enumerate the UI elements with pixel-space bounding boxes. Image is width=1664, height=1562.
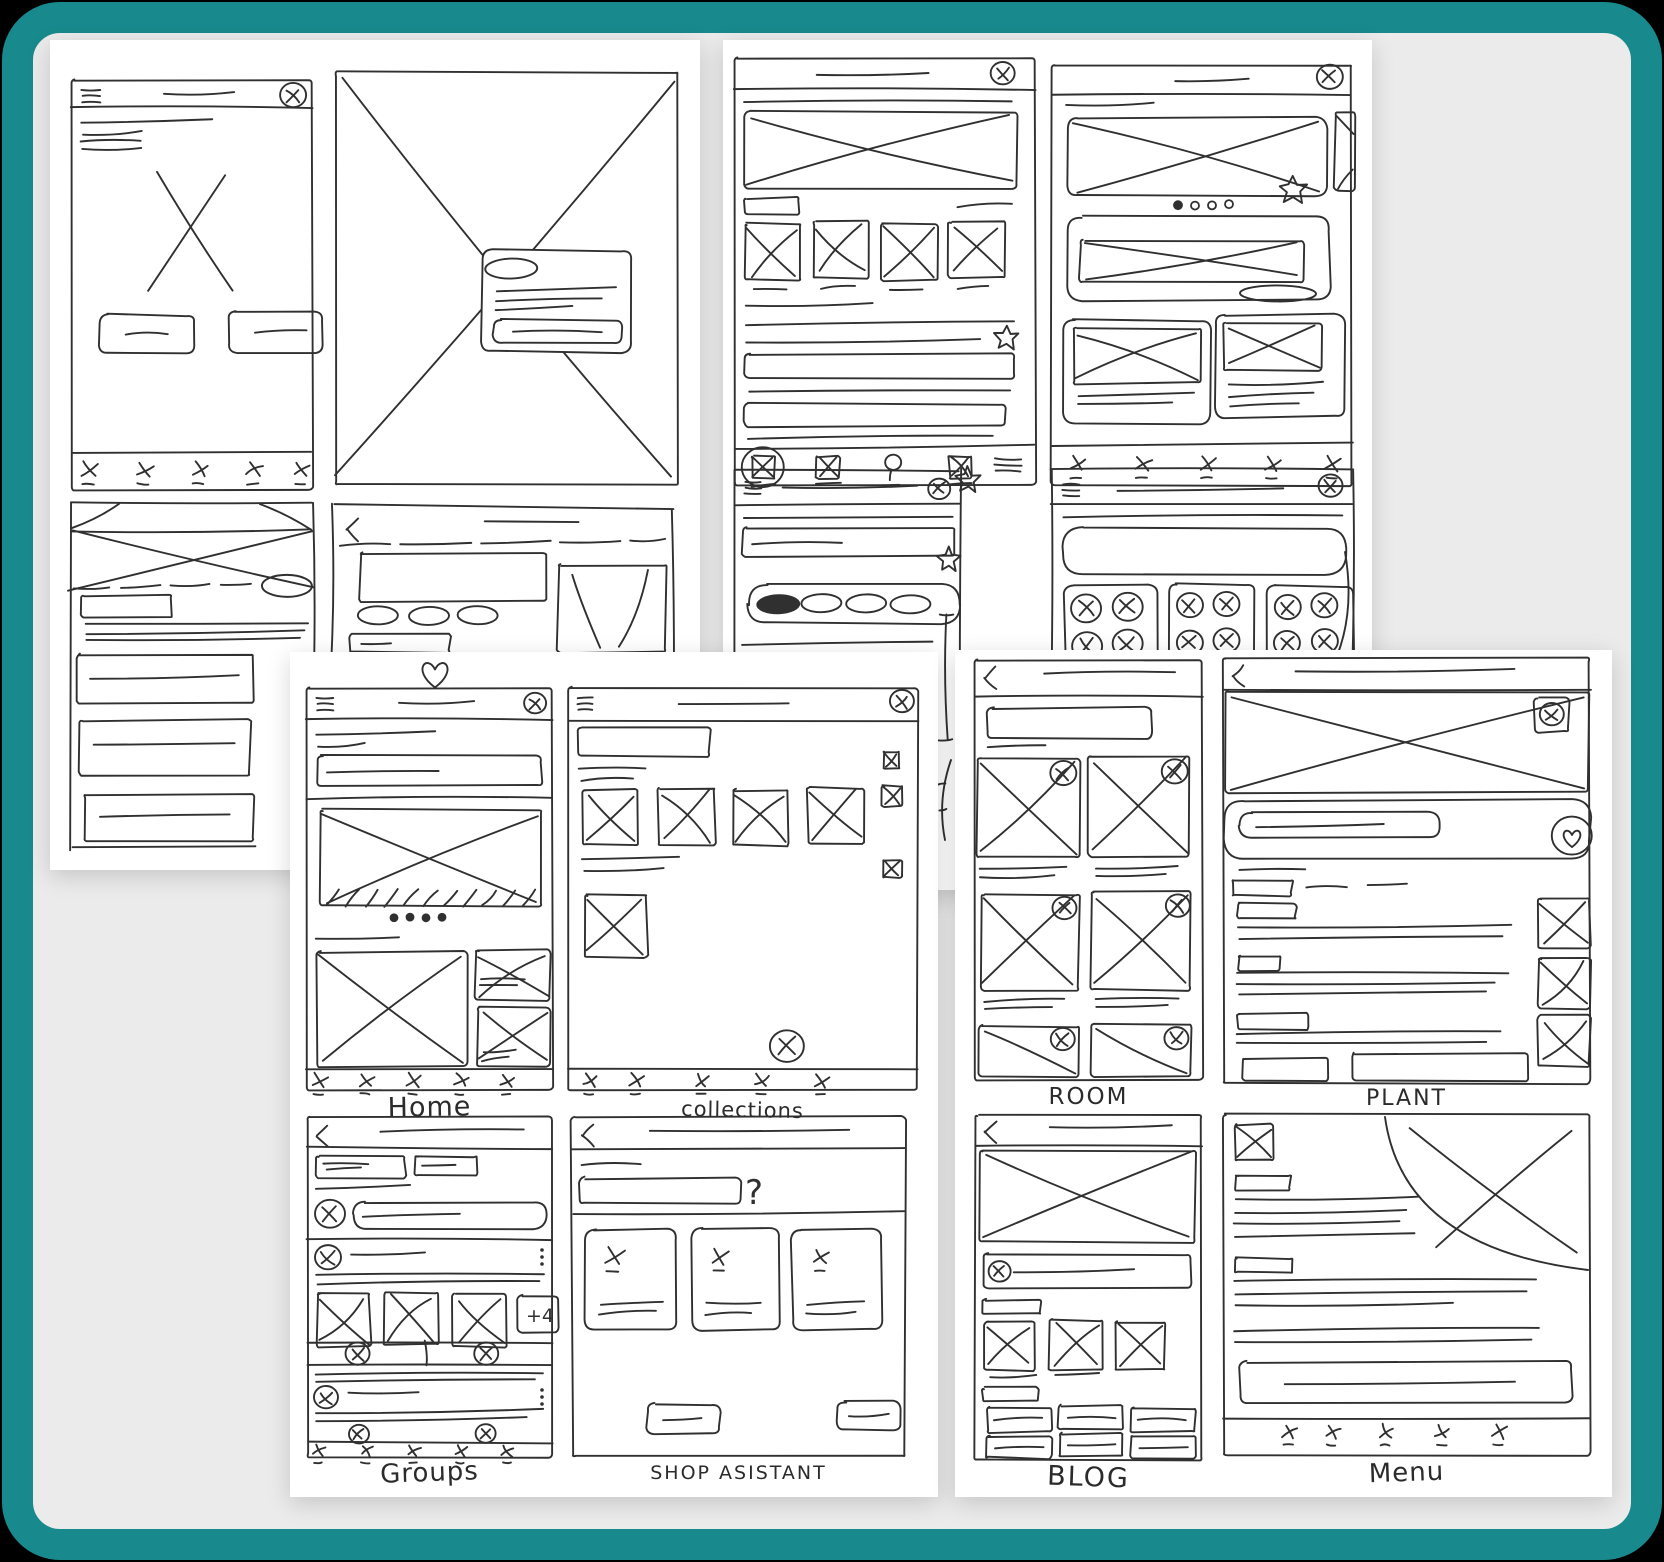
sketch-room-plant-blog-menu (955, 650, 1612, 1497)
wireframe-label-home: Home (307, 1090, 553, 1125)
scanned-wireframe-board: +4? Home collections Groups SHOP ASISTAN… (0, 0, 1664, 1562)
svg-text:?: ? (745, 1173, 763, 1213)
wireframe-label-shop-assistant: SHOP ASISTANT (572, 1462, 905, 1484)
wireframe-label-plant: PLANT (1223, 1086, 1590, 1111)
wireframe-label-room: ROOM (975, 1084, 1202, 1110)
paper-sheet-home: +4? Home collections Groups SHOP ASISTAN… (290, 652, 938, 1497)
svg-text:+4: +4 (526, 1305, 554, 1327)
paper-sheet-catalog: ROOM PLANT BLOG Menu (955, 650, 1612, 1497)
sketch-home-collections-groups-assistant: +4? (290, 652, 938, 1497)
